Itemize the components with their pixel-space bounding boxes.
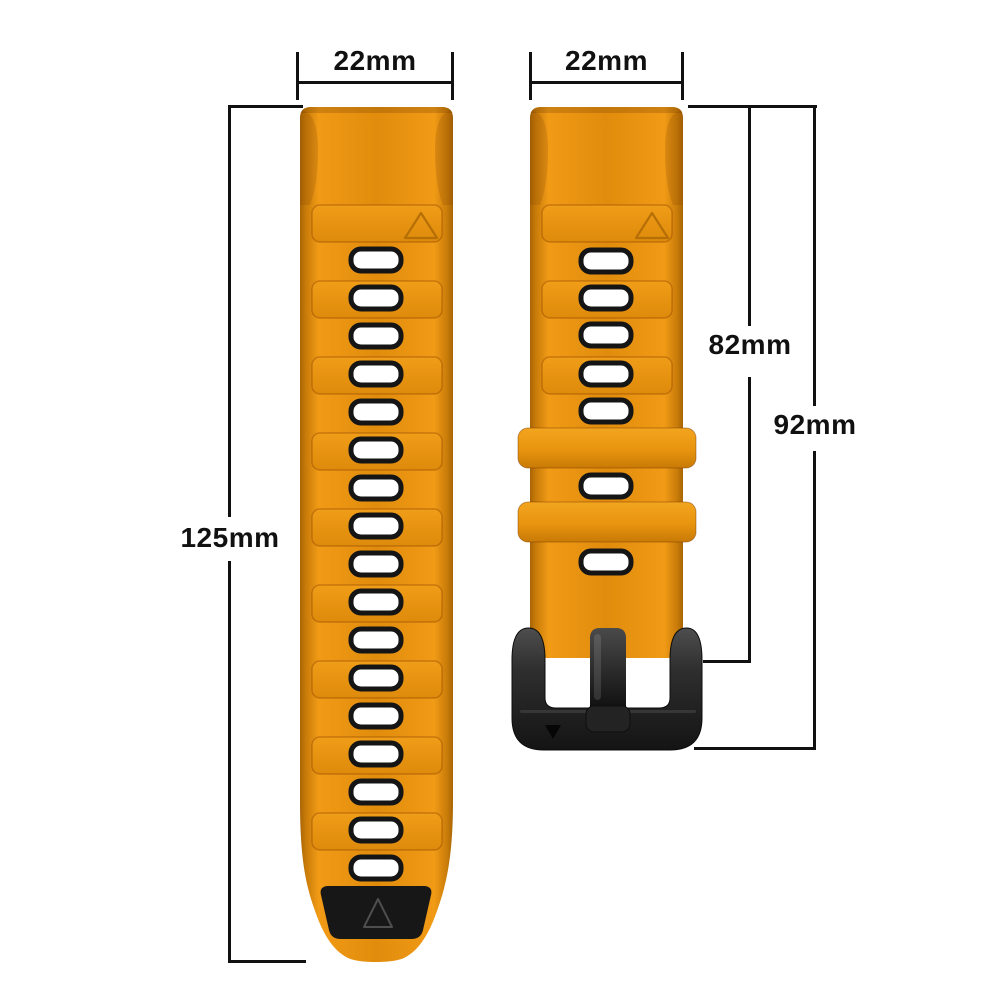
left-strap-length-label: 125mm (160, 523, 300, 553)
dim-82-bottom-tick (703, 660, 751, 663)
dim-right-width-line (529, 81, 684, 84)
right-strap-inner-length-label: 82mm (706, 330, 794, 360)
straps-graphic (0, 0, 1000, 1000)
right-strap-total-length-label: 92mm (771, 410, 859, 440)
right-strap-width-label: 22mm (529, 46, 684, 76)
left-strap-width-label: 22mm (296, 46, 454, 76)
dim-125-top-tick (228, 105, 303, 108)
dim-92-line-upper (813, 105, 816, 406)
dim-left-width-line (296, 81, 454, 84)
buckle-prong-highlight (594, 634, 601, 700)
dim-82-top-connector (688, 105, 817, 108)
dim-125-line-upper (228, 105, 231, 517)
dim-92-bottom-tick (694, 747, 816, 750)
left-strap-holes (351, 249, 401, 879)
dim-125-line-lower (228, 561, 231, 963)
dim-92-line-lower (813, 451, 816, 750)
dim-82-line-upper (748, 105, 751, 326)
left-strap-black-tip (321, 886, 432, 939)
dim-125-bottom-tick (228, 960, 306, 963)
left-strap (300, 107, 453, 962)
dim-82-line-lower (748, 377, 751, 663)
product-dimension-diagram: 22mm 22mm 125mm 82mm 92mm (0, 0, 1000, 1000)
buckle-prong-tip (586, 706, 630, 732)
right-strap (512, 107, 702, 750)
